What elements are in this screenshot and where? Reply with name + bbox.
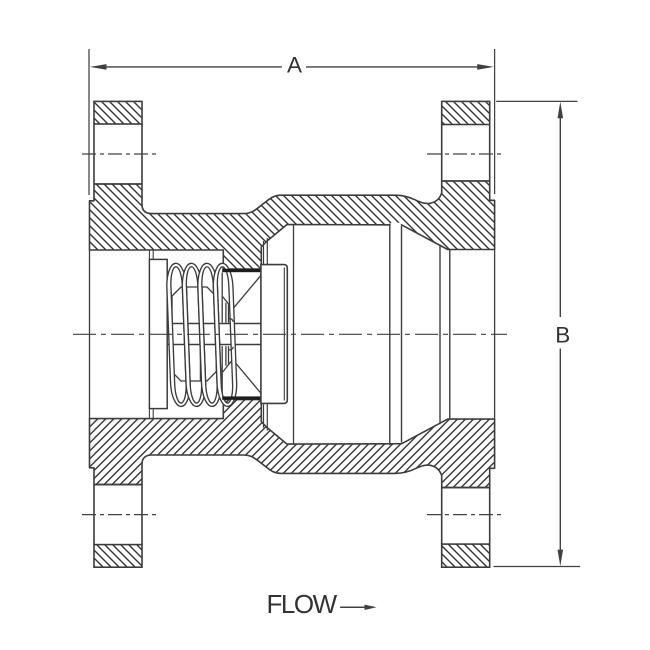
svg-text:FLOW: FLOW bbox=[267, 589, 338, 619]
svg-text:B: B bbox=[555, 323, 570, 348]
svg-text:A: A bbox=[287, 52, 302, 77]
